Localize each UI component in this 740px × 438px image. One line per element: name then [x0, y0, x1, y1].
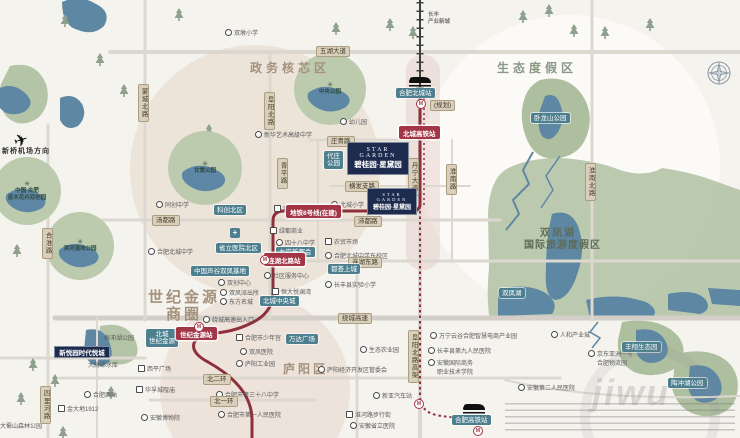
poi-label: 绕城高速出入口: [203, 315, 254, 324]
tree-icon: [16, 392, 26, 410]
poi-text: 淮河路步行街: [355, 410, 391, 419]
poi-square-icon: [270, 227, 277, 234]
poi-circle-icon: [220, 289, 227, 296]
poi-circle-icon: [141, 414, 148, 421]
poi-circle-icon: [430, 332, 437, 339]
poi-label-teal: 代庄 公园: [324, 151, 343, 169]
poi-text: 合肥市第一人民医院: [227, 410, 281, 419]
park-circle: ✳滨河湿地公园: [46, 212, 114, 280]
metro-station-icon: M: [416, 99, 426, 109]
poi-circle-icon: [318, 366, 325, 373]
poi-text: 安徽博物院: [150, 413, 180, 422]
poi-text: 双创中心: [227, 278, 251, 287]
poi-circle-icon: [588, 350, 595, 357]
poi-circle-icon: [428, 359, 435, 366]
poi-circle-icon: [325, 252, 332, 259]
poi-label: 双凤医院: [240, 347, 273, 356]
project-name-cn: 新悦园时代悦城: [59, 347, 105, 357]
poi-text: 幼儿园: [349, 117, 367, 126]
poi-text: 人和产业城: [560, 330, 590, 339]
road-label: 合淮路: [42, 228, 53, 259]
poi-text: 梅冲湖公园: [104, 333, 134, 342]
poi-text: 大房郢水库: [88, 360, 118, 369]
poi-circle-icon: [350, 422, 357, 429]
poi-circle-icon: [255, 131, 262, 138]
area-title: 长丰 产业新城: [428, 12, 450, 25]
poi-circle-icon: [203, 316, 210, 323]
poi-label: 淮河路步行街: [346, 410, 391, 419]
poi-label: 农贸市场: [325, 237, 358, 246]
poi-label: 安徽国际商务 职业技术学院: [428, 358, 473, 376]
poi-square-icon: [325, 238, 332, 245]
poi-label-teal: 万达广场: [286, 334, 318, 344]
poi-square-icon: [138, 365, 145, 372]
poi-label: 万宁云谷合肥智慧电商产业园: [430, 331, 517, 340]
poi-label: 合肥市第一人民医院: [218, 410, 281, 419]
tree-icon: [408, 26, 418, 44]
poi-text: 庐阳工业园: [245, 359, 275, 368]
tree-icon: [385, 18, 395, 36]
poi-text: 西平广场: [147, 364, 171, 373]
poi-label: 长丰县实验小学: [325, 280, 376, 289]
poi-label: 金大地1912: [58, 404, 98, 413]
park-icon: ✳: [327, 82, 333, 89]
poi-label: 合肥市少年宫: [236, 333, 281, 342]
location-map: ✈ + jiwu 政务核芯区生态度假区双凤湖国际旅游度假区世纪金源商圈庐阳区新桥…: [0, 0, 740, 438]
area-title: 生态度假区: [497, 61, 577, 75]
poi-text: 同创中学: [165, 200, 189, 209]
tree-icon: [645, 18, 655, 36]
poi-label: 社区服务中心: [264, 271, 309, 280]
poi-label: 大房郢水库: [88, 360, 118, 369]
poi-text: 金大地1912: [67, 404, 98, 413]
metro-station-label: 地铁8号线(在建): [286, 205, 341, 218]
road-label: 北一环: [210, 396, 238, 407]
park-icon: ✳: [24, 181, 30, 188]
poi-circle-icon: [84, 391, 91, 398]
poi-label: 合肥北城中学: [148, 247, 193, 256]
poi-square-icon: [136, 386, 143, 393]
poi-circle-icon: [373, 392, 380, 399]
poi-circle-icon: [325, 281, 332, 288]
metro-station-icon: M: [414, 399, 424, 409]
tree-icon: [58, 426, 68, 438]
road-label: 绕城高速: [338, 313, 372, 324]
poi-label: 西平广场: [138, 364, 171, 373]
poi-circle-icon: [264, 272, 271, 279]
compass-icon: [706, 60, 732, 86]
project-box: STAR GARDEN碧桂园·星黛园: [347, 142, 409, 175]
poi-text: 社区服务中心: [273, 271, 309, 280]
poi-square-icon: [272, 288, 279, 295]
poi-text: 四十八中学: [285, 238, 315, 247]
project-name-cn: 碧桂园·星黛园: [354, 159, 402, 170]
road-label: 蒙城北路: [138, 84, 149, 122]
poi-text: 新亚汽车站: [382, 391, 412, 400]
tree-icon: [518, 10, 528, 28]
poi-text: 合肥西站: [93, 390, 117, 399]
metro-station-icon: M: [194, 322, 204, 332]
watermark: jiwu: [592, 372, 670, 414]
poi-label: 新亚汽车站: [373, 391, 412, 400]
metro-station-label: 连湖北路站: [264, 253, 305, 266]
poi-label-teal: 合肥北城站: [396, 88, 435, 98]
poi-text: 安徽第二人民医院: [527, 383, 575, 392]
poi-label: 生态农业园: [360, 345, 399, 354]
project-name-en: STAR GARDEN: [347, 147, 409, 159]
poi-text: 生态农业园: [369, 345, 399, 354]
tree-icon: [544, 4, 554, 22]
road-label: 北二环: [203, 374, 231, 385]
poi-label-teal: 卧龙山公园: [531, 113, 570, 123]
poi-square-icon: [274, 205, 281, 212]
poi-text: 庐阳经济开发区管委会: [327, 365, 387, 374]
poi-text: 恒大悦澜湾: [281, 287, 311, 296]
poi-text: 长丰县实验小学: [334, 280, 376, 289]
poi-circle-icon: [218, 279, 225, 286]
tree-icon: [174, 8, 184, 26]
park-name: 中央公园: [319, 89, 341, 96]
tree-icon: [50, 374, 60, 392]
project-name-en: STAR GARDEN: [367, 192, 417, 202]
road-label: 淮南北路: [585, 163, 596, 201]
poi-circle-icon: [236, 360, 243, 367]
poi-text: 绿都商业: [279, 226, 303, 235]
poi-label-teal: 北城 世纪金源: [146, 329, 178, 347]
tree-icon: [12, 244, 22, 262]
road-label: 四里河路: [40, 386, 51, 424]
tree-icon: [60, 14, 70, 32]
park-name: 甘棠公园: [194, 168, 216, 175]
project-box: 新悦园时代悦城: [54, 346, 110, 358]
poi-text: 华孚城隍庙: [145, 385, 175, 394]
poi-label: 双凤派出所: [220, 288, 259, 297]
poi-label: 安徽博物院: [141, 413, 180, 422]
poi-text: 双凤医院: [249, 347, 273, 356]
tree-icon: [119, 84, 129, 102]
project-box: STAR GARDEN碧桂园·星黛园: [367, 188, 417, 215]
tree-icon: [28, 358, 38, 376]
poi-text: 长丰县第九人民医院: [437, 346, 491, 355]
metro-station-label: 北城高铁站: [399, 126, 440, 139]
bullet-train-icon: [462, 403, 486, 415]
road-label: 五湖大道: [316, 46, 350, 57]
poi-label-teal: 都荟上城: [328, 264, 360, 274]
tree-icon: [600, 26, 610, 44]
poi-text: 万宁云谷合肥智慧电商产业园: [439, 331, 517, 340]
poi-text: 合肥市少年宫: [245, 333, 281, 342]
poi-text: 安徽省立医院: [359, 421, 395, 430]
poi-label: 人和产业城: [551, 330, 590, 339]
metro-station-icon: M: [473, 426, 483, 436]
area-title: 世纪金源: [148, 289, 220, 307]
poi-label-teal: 中国声谷双凤基地: [191, 266, 249, 276]
poi-text: 绕城高速出入口: [212, 315, 254, 324]
poi-circle-icon: [156, 201, 163, 208]
poi-circle-icon: [240, 348, 247, 355]
poi-label: 绿都商业: [270, 226, 303, 235]
park-name: 滨河湿地公园: [63, 246, 96, 253]
road-label: (规划): [430, 100, 455, 111]
park-icon: ✳: [202, 161, 208, 168]
tree-icon: [569, 24, 579, 42]
tree-icon: [331, 22, 341, 40]
poi-square-icon: [346, 411, 353, 418]
poi-text: 新华艺术高级中学: [264, 130, 312, 139]
area-title: 双凤湖: [540, 228, 576, 240]
poi-label-teal: 合肥高铁站: [452, 415, 491, 425]
road-label: 沛都路: [354, 216, 382, 227]
area-title: 政务核芯区: [250, 61, 330, 75]
poi-label: 双创中心: [218, 278, 251, 287]
poi-circle-icon: [340, 118, 347, 125]
area-title: 国际旅游度假区: [524, 240, 601, 252]
poi-label: 大蜀山森林公园: [0, 421, 42, 430]
poi-label: 东方名城: [220, 297, 253, 306]
park-circle: ✳甘棠公园: [168, 131, 242, 205]
poi-label-teal: 省立医院北区: [216, 243, 261, 253]
poi-label: 幼儿园: [340, 117, 367, 126]
poi-label: 恒大悦澜湾: [272, 287, 311, 296]
project-name-cn: 碧桂园·星黛园: [373, 202, 411, 211]
poi-label: 安徽第二人民医院: [518, 383, 575, 392]
poi-label: 双墩小学: [225, 28, 258, 37]
poi-text: 北城小学: [340, 200, 364, 209]
poi-label: 梅冲湖公园: [104, 333, 134, 342]
poi-label-teal: 北城中央城: [260, 296, 299, 306]
poi-circle-icon: [428, 347, 435, 354]
poi-text: 双凤派出所: [229, 288, 259, 297]
poi-label: 庐阳经济开发区管委会: [318, 365, 387, 374]
park-name: 中国·合肥 苗木花卉双创园: [8, 188, 47, 202]
poi-circle-icon: [218, 411, 225, 418]
road-label: 汤都路: [152, 215, 180, 226]
poi-circle-icon: [225, 29, 232, 36]
poi-text: 东方名城: [229, 297, 253, 306]
road-label: 阜阳北路: [264, 92, 275, 130]
poi-label: 同创中学: [156, 200, 189, 209]
poi-label: 庐阳工业园: [236, 359, 275, 368]
poi-text: 大蜀山森林公园: [0, 421, 42, 430]
poi-circle-icon: [148, 248, 155, 255]
poi-text: 双墩小学: [234, 28, 258, 37]
poi-label: 华孚城隍庙: [136, 385, 175, 394]
poi-circle-icon: [360, 346, 367, 353]
poi-label-teal: 双凤湖: [499, 288, 525, 298]
poi-text: 安徽国际商务 职业技术学院: [437, 358, 473, 376]
road-label: 淮南路: [446, 164, 457, 195]
poi-label: 新华艺术高级中学: [255, 130, 312, 139]
poi-square-icon: [58, 405, 65, 412]
poi-label: 安徽省立医院: [350, 421, 395, 430]
bullet-train-icon: [408, 76, 432, 88]
road-label: 阜阳北路高架: [408, 330, 419, 383]
poi-circle-icon: [276, 239, 283, 246]
poi-text: 农贸市场: [334, 237, 358, 246]
hospital-icon: +: [230, 228, 240, 238]
poi-circle-icon: [551, 331, 558, 338]
poi-label: 四十八中学: [276, 238, 315, 247]
poi-circle-icon: [518, 384, 525, 391]
poi-circle-icon: [220, 298, 227, 305]
park-icon: ✳: [77, 239, 83, 246]
tree-icon: [95, 53, 105, 71]
metro-station-icon: M: [260, 255, 270, 265]
road-label: 青平路: [277, 158, 288, 189]
poi-text: 合肥北城中学: [157, 247, 193, 256]
poi-label: 合肥西站: [84, 390, 117, 399]
poi-label-teal: 科创北区: [214, 205, 246, 215]
poi-label: 长丰县第九人民医院: [428, 346, 491, 355]
poi-square-icon: [236, 334, 243, 341]
